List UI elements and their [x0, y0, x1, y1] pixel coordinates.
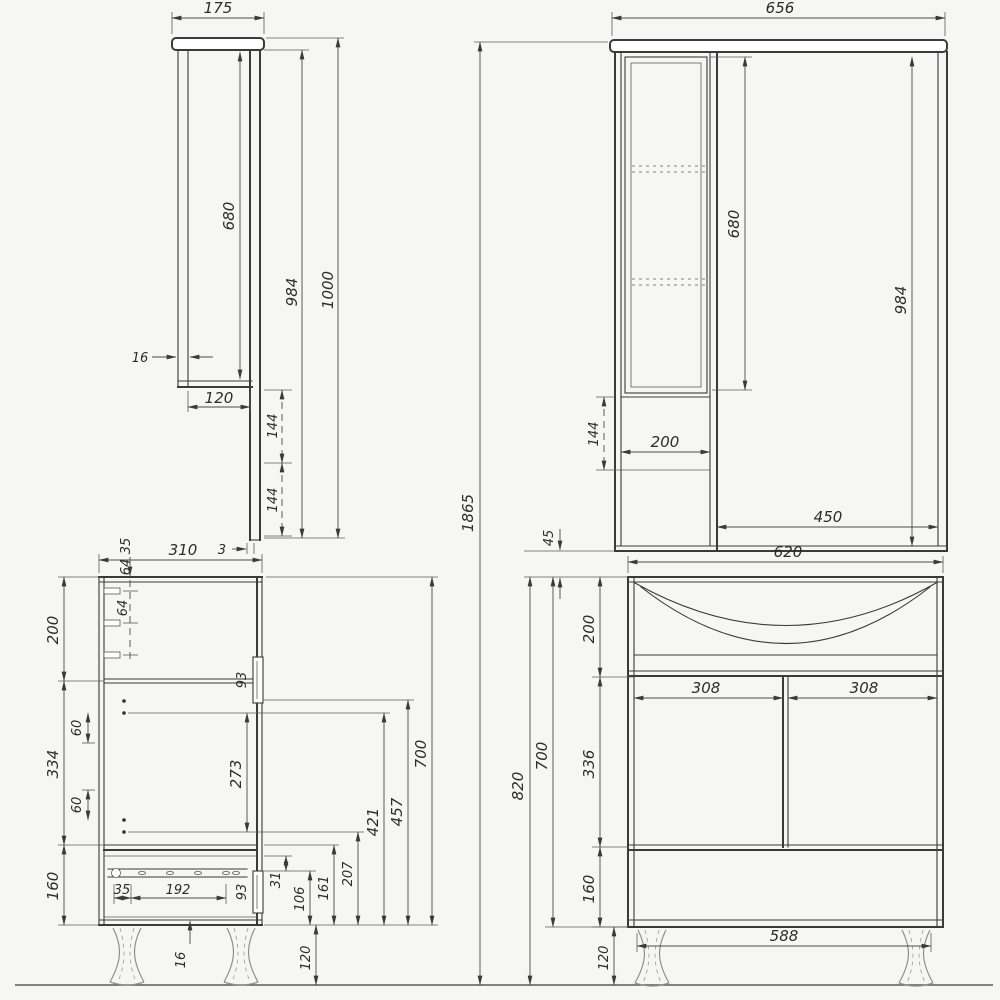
- dim-door-section: 336: [580, 750, 598, 779]
- dim-31: 31: [269, 872, 284, 889]
- vanity-side-view: 310 35 64 64 200 334 160 60 60 93 93: [44, 538, 438, 985]
- dim-bottom-thickness: 16: [174, 952, 189, 969]
- dim-peg-top-offset: 35: [119, 538, 134, 555]
- door-handle-side: [253, 657, 263, 703]
- dim-106: 106: [293, 887, 308, 912]
- basin-curve-upper: [635, 583, 936, 626]
- dim-hinge-offset-top: 60: [70, 720, 85, 737]
- dim-mirror-side-door-height: 680: [220, 202, 238, 231]
- dim-mirror-front-mirror-width: 450: [814, 508, 843, 526]
- dim-peg-gap-2: 64: [116, 600, 131, 617]
- dim-drawer-section-front: 160: [580, 875, 598, 904]
- dim-mirror-side-height-no-cap: 984: [283, 278, 301, 307]
- dim-top-section: 200: [44, 616, 62, 645]
- overall-height-dimension: 1865: [459, 42, 608, 985]
- dim-overall-height: 1865: [459, 494, 477, 532]
- dim-wall-gap: 45: [542, 530, 557, 547]
- mirror-cabinet-side-view: 175 16 120 144 144 3 680 984 10: [132, 0, 345, 558]
- drawer-handle-side: [253, 871, 263, 913]
- top-cap-front: [610, 40, 947, 52]
- dim-body-height-front: 700: [533, 742, 551, 771]
- dim-mirror-side-body-depth: 120: [205, 389, 234, 407]
- dim-mirror-side-glass: 3: [218, 543, 226, 558]
- basin-curve-lower: [641, 587, 930, 644]
- dim-161: 161: [317, 876, 332, 901]
- dim-drawer-section-side: 160: [44, 872, 62, 901]
- dim-peg-gap-1: 64: [119, 559, 134, 576]
- bathroom-furniture-drawing: 175 16 120 144 144 3 680 984 10: [0, 0, 1000, 1000]
- dim-leg-height-side: 120: [299, 946, 314, 971]
- dim-body-height-side: 700: [412, 740, 430, 769]
- dim-mirror-side-panel: 16: [132, 351, 149, 366]
- dim-door-handle: 93: [235, 672, 250, 689]
- dim-mirror-side-depth: 175: [204, 0, 233, 17]
- dim-mirror-front-height: 984: [892, 286, 910, 315]
- dim-mirror-front-door-height: 680: [725, 210, 743, 239]
- dim-total-height-front: 820: [509, 772, 527, 801]
- dim-drawer-handle: 93: [235, 884, 250, 901]
- cabinet-door: [625, 57, 707, 393]
- dim-mirror-front-cabinet-width: 200: [651, 433, 680, 451]
- dim-mirror-front-width: 656: [766, 0, 795, 17]
- dim-vanity-width: 620: [774, 543, 803, 561]
- dim-basin-section: 200: [580, 615, 598, 644]
- top-cap-side: [172, 38, 264, 50]
- dim-door-width-right: 308: [850, 679, 879, 697]
- dim-457: 457: [388, 797, 406, 826]
- dim-door-width-left: 308: [692, 679, 721, 697]
- dim-hinge-span: 273: [227, 760, 245, 789]
- dim-207: 207: [341, 861, 356, 887]
- dim-leg-span: 588: [770, 927, 799, 945]
- technical-drawing-sheet: 175 16 120 144 144 3 680 984 10: [0, 0, 1000, 1000]
- dim-slide-span: 192: [166, 883, 191, 898]
- dim-mirror-front-open-section: 144: [587, 422, 602, 447]
- dim-mid-section: 334: [44, 750, 62, 779]
- dim-mirror-side-ext2: 144: [266, 488, 281, 513]
- mirror-cabinet-front-view: 656 680 144 200 450 984 45: [524, 0, 947, 599]
- dim-mirror-side-ext1: 144: [266, 414, 281, 439]
- vanity-front-view: 620 200 336 160 308 308 700 820 588 120: [509, 543, 943, 986]
- dim-leg-height-front: 120: [597, 946, 612, 971]
- dim-421: 421: [364, 808, 382, 837]
- dim-vanity-depth: 310: [169, 541, 198, 559]
- dim-mirror-side-total-height: 1000: [319, 271, 337, 309]
- dim-hinge-offset-bottom: 60: [70, 797, 85, 814]
- dim-slide-offset: 35: [114, 883, 131, 898]
